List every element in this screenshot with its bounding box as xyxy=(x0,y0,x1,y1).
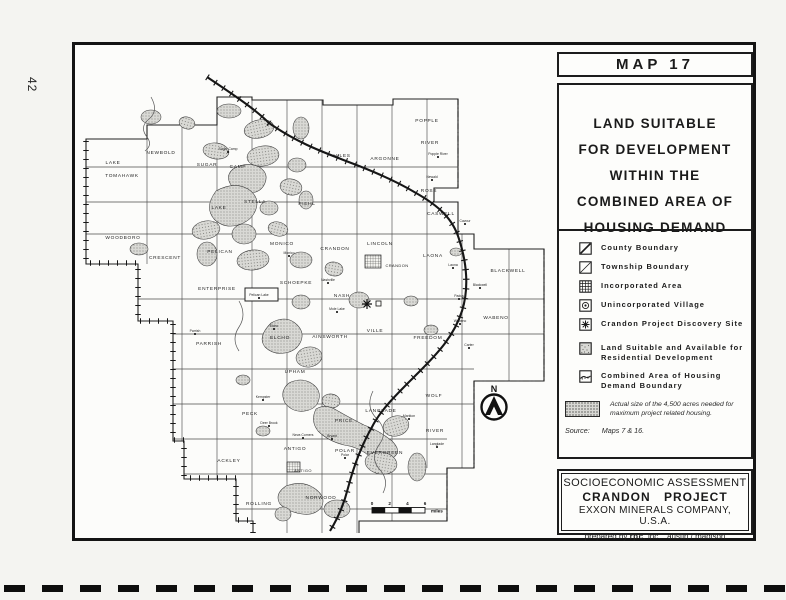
svg-text:N: N xyxy=(491,384,498,394)
project-title: CRANDON PROJECT xyxy=(562,490,748,504)
village-label: Carter xyxy=(464,343,474,347)
acres-swatch xyxy=(565,401,600,417)
township-label: ROSS xyxy=(421,188,437,194)
village-dot xyxy=(437,156,439,158)
township-label: BLACKWELL xyxy=(490,268,525,274)
legend-row-township: Township Boundary xyxy=(579,262,745,274)
township-label: CAMP xyxy=(230,164,247,170)
legend-label: Unincorporated Village xyxy=(601,300,745,310)
legend-label: Land Suitable and Available for Resident… xyxy=(601,343,745,363)
village-dot xyxy=(408,418,410,420)
unincorporated-village-icon xyxy=(579,299,592,312)
prepared-label: prepared by xyxy=(585,532,628,541)
firm-suffix: , inc. xyxy=(644,532,661,541)
village-dot xyxy=(258,297,260,299)
township-label: LAKE xyxy=(211,205,226,211)
village-label: Langlade xyxy=(430,442,444,446)
firm-name: rpc xyxy=(630,532,644,541)
village-label: Cavour xyxy=(460,219,472,223)
township-label: CRESCENT xyxy=(149,255,181,261)
binding-dash-strip xyxy=(4,585,786,592)
source-line: Source: Maps 7 & 16. xyxy=(565,426,745,435)
township-label: VILLE xyxy=(367,328,384,334)
township-label: LAONA xyxy=(423,253,443,259)
township-label: CASWELL xyxy=(427,211,455,217)
village-label: Nashville xyxy=(321,278,335,282)
township-label: EVERGREEN xyxy=(367,450,403,456)
map-canvas: N 0 2 4 6 miles LAKETOMAHAWKNEWBOLDSUGAR… xyxy=(77,47,555,533)
village-dot xyxy=(288,255,290,257)
township-label: ANTIGO xyxy=(284,446,307,452)
township-label: PELICAN xyxy=(207,249,232,255)
township-label: WOLF xyxy=(426,393,443,399)
village-label: Parrish xyxy=(190,329,201,333)
township-label: UPHAM xyxy=(285,369,306,375)
acres-note: Actual size of the 4,500 acres needed fo… xyxy=(610,401,740,418)
legend-label: Combined Area of Housing Demand Boundary xyxy=(601,371,745,391)
source-value: Maps 7 & 16. xyxy=(602,426,644,435)
village-label: Neva Corners xyxy=(293,433,314,437)
township-label: PRICE xyxy=(335,418,353,424)
township-label: ARGONNE xyxy=(370,156,399,162)
village-label: Kempster xyxy=(256,395,271,399)
village-label: Laona xyxy=(448,263,458,267)
assessment-title: SOCIOECONOMIC ASSESSMENT xyxy=(562,477,748,489)
title-line-1: LAND SUITABLE xyxy=(559,111,751,137)
village-dot xyxy=(344,457,346,459)
discovery-site-icon xyxy=(579,318,592,331)
township-label: NEWBOLD xyxy=(146,150,175,156)
company-line: EXXON MINERALS COMPANY, U.S.A. xyxy=(562,505,748,527)
township-label: PIEHL xyxy=(298,201,315,207)
village-dot xyxy=(436,446,438,448)
north-arrow: N xyxy=(482,384,507,420)
svg-text:miles: miles xyxy=(431,509,443,514)
attribution-inner: SOCIOECONOMIC ASSESSMENT CRANDON PROJECT… xyxy=(561,473,749,531)
township-label: FREEDOM xyxy=(414,335,443,341)
title-line-4: COMBINED AREA OF xyxy=(559,189,751,215)
village-dot xyxy=(327,282,329,284)
township-label: STELLA xyxy=(244,199,266,205)
svg-text:0: 0 xyxy=(371,501,374,506)
scale-bar: 0 2 4 6 miles xyxy=(371,501,443,514)
village-label: Mole Lake xyxy=(329,307,345,311)
legend-row-unincorporated: Unincorporated Village xyxy=(579,300,745,312)
legend-row-combined: Combined Area of Housing Demand Boundary xyxy=(579,371,745,391)
township-label: LANGLADE xyxy=(365,408,396,414)
village-dot xyxy=(336,311,338,313)
source-label: Source: xyxy=(565,426,590,435)
township-label: RIVER xyxy=(426,428,444,434)
map-number-box: MAP 17 xyxy=(557,52,753,77)
legend-label: County Boundary xyxy=(601,243,745,253)
village-dot xyxy=(464,223,466,225)
township-label: MONICO xyxy=(270,241,294,247)
legend-row-incorporated: Incorporated Area xyxy=(579,281,745,293)
township-label: ELCHO xyxy=(270,335,290,341)
township-label: NASH xyxy=(334,293,350,299)
village-label: Popple River xyxy=(428,152,448,156)
county-outline xyxy=(86,97,544,533)
suitable-land-areas xyxy=(130,104,462,521)
village-dot xyxy=(227,151,229,153)
combined-boundary-icon xyxy=(579,370,592,383)
township-label: PECK xyxy=(242,411,258,417)
firm-location: austin / madison xyxy=(667,532,725,541)
legend-label: Crandon Project Discovery Site xyxy=(601,319,745,329)
village-label: Sugar Camp xyxy=(218,147,237,151)
svg-text:4: 4 xyxy=(406,501,409,506)
incorporated-area-icon xyxy=(579,280,592,293)
legend-label: Incorporated Area xyxy=(601,281,745,291)
township-boundary-icon xyxy=(579,261,592,274)
map-sheet-frame: N 0 2 4 6 miles LAKETOMAHAWKNEWBOLDSUGAR… xyxy=(72,42,756,541)
village-dot xyxy=(268,425,270,427)
township-label: POPPLE xyxy=(415,118,438,124)
village-dot xyxy=(194,333,196,335)
village-label: Padus xyxy=(454,294,464,298)
acres-note-row: Actual size of the 4,500 acres needed fo… xyxy=(565,401,745,418)
village-dot xyxy=(479,287,481,289)
village-label: Elcho xyxy=(270,324,279,328)
title-line-5: HOUSING DEMAND xyxy=(559,215,751,241)
village-dot xyxy=(452,267,454,269)
legend-row-discovery: Crandon Project Discovery Site xyxy=(579,319,745,331)
land-suitable-icon xyxy=(579,342,592,355)
city-label: CRANDON xyxy=(385,263,408,268)
legend-box: County Boundary Township Boundary Incorp… xyxy=(557,229,753,459)
village-label: Wabeno xyxy=(454,319,467,323)
village-dot xyxy=(459,323,461,325)
village-label: Bryant xyxy=(327,434,337,438)
township-label: NORWOOD xyxy=(306,495,337,501)
village-dot xyxy=(262,399,264,401)
village-dot xyxy=(331,438,333,440)
village-dot xyxy=(302,437,304,439)
township-label: RIVER xyxy=(421,140,439,146)
township-label: LAKE xyxy=(105,160,120,166)
svg-text:6: 6 xyxy=(424,501,427,506)
attribution-box: SOCIOECONOMIC ASSESSMENT CRANDON PROJECT… xyxy=(557,469,753,535)
township-grid xyxy=(86,97,544,533)
village-label: Newald xyxy=(426,175,437,179)
legend-label: Township Boundary xyxy=(601,262,745,272)
township-label: TOMAHAWK xyxy=(105,173,139,179)
township-label: WOODBORO xyxy=(105,235,140,241)
township-label: WABENO xyxy=(483,315,508,321)
village-label: Polar xyxy=(341,453,350,457)
svg-text:2: 2 xyxy=(388,501,391,506)
village-label: Monico xyxy=(284,251,295,255)
page-number: 42 xyxy=(25,77,39,97)
village-dot xyxy=(458,298,460,300)
title-line-2: FOR DEVELOPMENT xyxy=(559,137,751,163)
township-label: ENTERPRISE xyxy=(198,286,236,292)
township-label: CRANDON xyxy=(320,246,349,252)
city-label: ANTIGO xyxy=(294,468,312,473)
map-number-label: MAP 17 xyxy=(616,56,694,73)
legend-row-county: County Boundary xyxy=(579,243,745,255)
village-label: Deer Brook xyxy=(260,421,277,425)
village-dot xyxy=(273,328,275,330)
township-label: SUGAR xyxy=(197,162,218,168)
village-label: Pelican Lake xyxy=(249,293,269,297)
township-label: ROLLING xyxy=(246,501,272,507)
village-dot xyxy=(468,347,470,349)
township-label: ACKLEY xyxy=(217,458,240,464)
township-label: PARRISH xyxy=(196,341,222,347)
village-label: Blackwell xyxy=(473,283,487,287)
info-panel: MAP 17 LAND SUITABLE FOR DEVELOPMENT WIT… xyxy=(557,52,753,535)
prepared-by-line: prepared by rpc, inc. austin / madison xyxy=(562,532,748,541)
township-label: LINCOLN xyxy=(367,241,393,247)
township-label: SCHOEPKE xyxy=(280,280,312,286)
township-label: AINSWORTH xyxy=(312,334,348,340)
county-boundary-icon xyxy=(579,242,592,255)
legend-row-suitable: Land Suitable and Available for Resident… xyxy=(579,343,745,363)
title-line-3: WITHIN THE xyxy=(559,163,751,189)
township-label: HILES xyxy=(333,153,350,159)
village-label: Markton xyxy=(403,414,415,418)
village-dot xyxy=(431,179,433,181)
map-title-box: LAND SUITABLE FOR DEVELOPMENT WITHIN THE… xyxy=(557,83,753,231)
